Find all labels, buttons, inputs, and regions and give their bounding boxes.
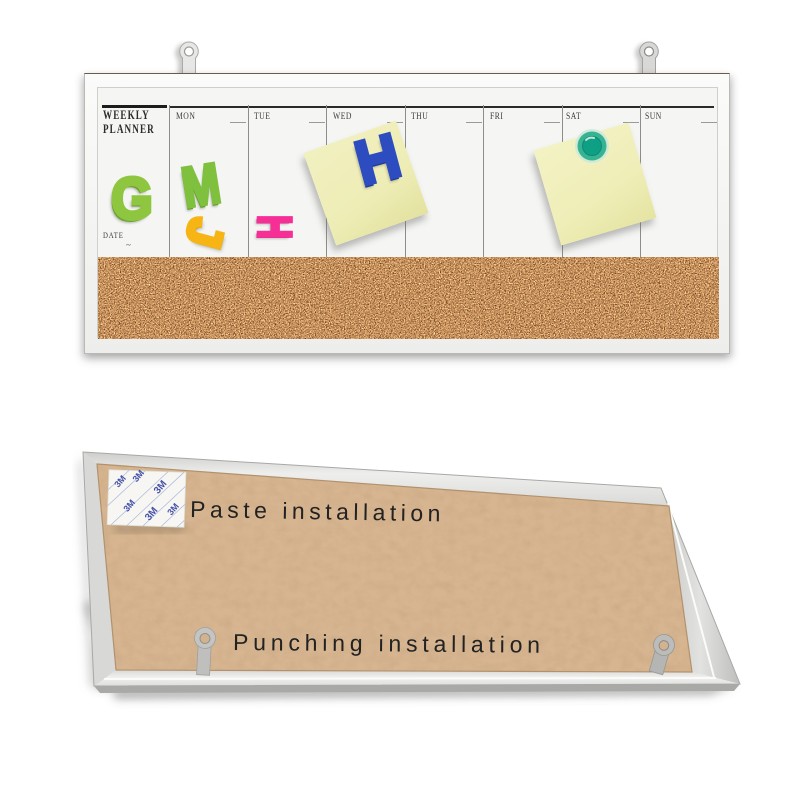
svg-text:Punching installation: Punching installation	[233, 629, 545, 658]
svg-text:Paste installation: Paste installation	[190, 496, 445, 526]
